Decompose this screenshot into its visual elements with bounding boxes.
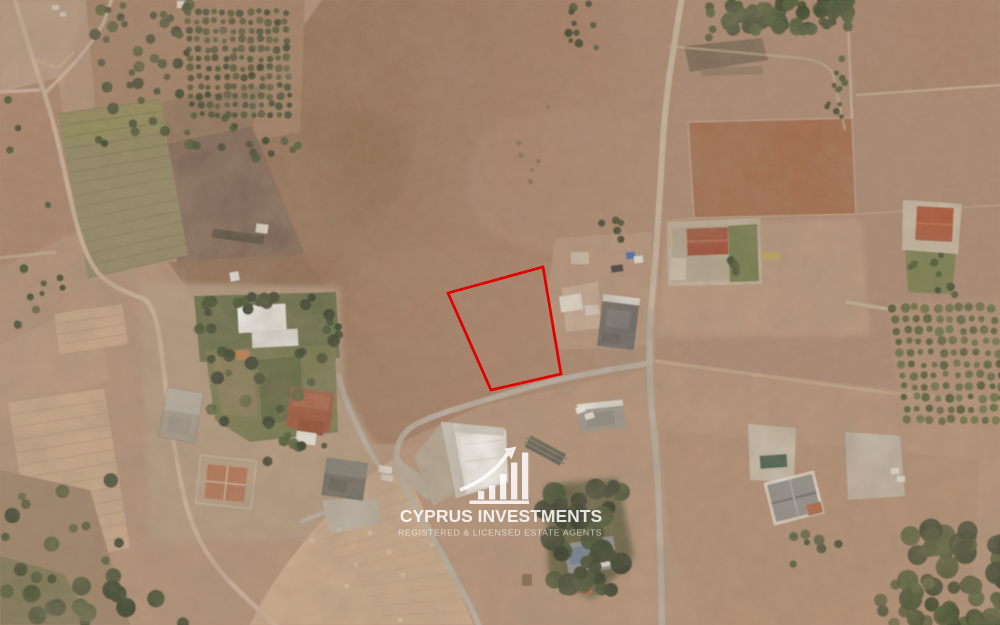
svg-text:CYPRUS INVESTMENTS: CYPRUS INVESTMENTS: [400, 506, 602, 526]
svg-text:REGISTERED & LICENSED ESTATE A: REGISTERED & LICENSED ESTATE AGENTS: [398, 528, 602, 538]
